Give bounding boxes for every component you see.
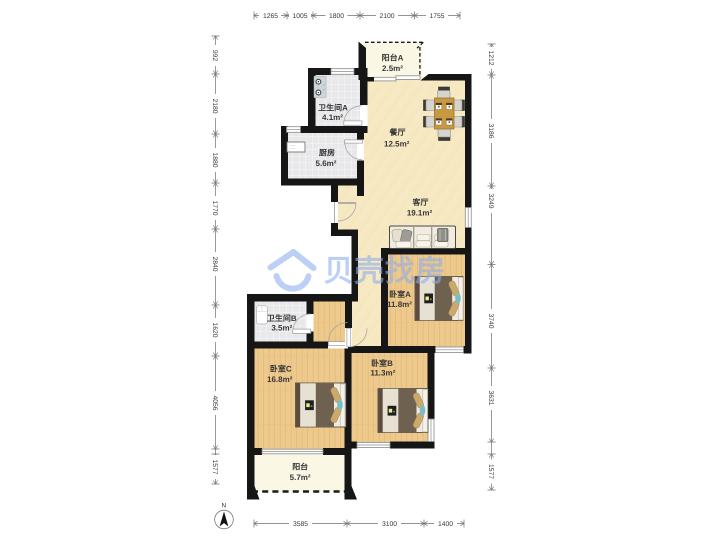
svg-text:1577: 1577	[211, 459, 218, 474]
svg-text:3740: 3740	[487, 313, 494, 328]
svg-text:贝壳找房: 贝壳找房	[324, 255, 446, 288]
svg-text:1755: 1755	[429, 13, 444, 20]
svg-text:厨房: 厨房	[319, 149, 335, 158]
svg-text:N: N	[221, 502, 226, 509]
svg-text:卧室B: 卧室B	[371, 359, 393, 368]
svg-text:1212: 1212	[487, 50, 494, 65]
svg-text:卧室C: 卧室C	[270, 365, 292, 374]
svg-text:3585: 3585	[293, 521, 308, 528]
svg-text:992: 992	[211, 50, 218, 62]
svg-text:5.7m²: 5.7m²	[290, 473, 311, 482]
svg-text:3.5m²: 3.5m²	[271, 324, 292, 333]
svg-text:11.3m²: 11.3m²	[370, 369, 395, 378]
svg-text:5.6m²: 5.6m²	[316, 159, 337, 168]
svg-text:卧室A: 卧室A	[389, 290, 411, 299]
svg-text:3631: 3631	[487, 390, 494, 405]
svg-text:19.1m²: 19.1m²	[407, 209, 433, 218]
svg-text:4056: 4056	[211, 395, 218, 410]
svg-text:16.8m²: 16.8m²	[267, 375, 293, 384]
svg-text:2840: 2840	[211, 256, 218, 271]
svg-text:3100: 3100	[382, 521, 397, 528]
svg-text:阳台A: 阳台A	[382, 54, 404, 63]
svg-text:2180: 2180	[211, 98, 218, 113]
svg-text:卫生间B: 卫生间B	[267, 314, 297, 323]
svg-text:1005: 1005	[292, 13, 307, 20]
svg-text:2100: 2100	[379, 13, 394, 20]
svg-text:3249: 3249	[487, 193, 494, 208]
svg-text:4.1m²: 4.1m²	[322, 113, 343, 122]
svg-text:餐厅: 餐厅	[389, 128, 406, 137]
svg-text:3186: 3186	[487, 123, 494, 138]
svg-text:1400: 1400	[438, 521, 453, 528]
svg-text:1577: 1577	[487, 464, 494, 479]
svg-text:1265: 1265	[263, 13, 278, 20]
svg-text:1770: 1770	[211, 200, 218, 215]
svg-text:2.5m²: 2.5m²	[382, 64, 403, 73]
svg-text:客厅: 客厅	[412, 198, 429, 207]
svg-text:卫生间A: 卫生间A	[318, 104, 348, 113]
svg-text:1800: 1800	[329, 13, 344, 20]
svg-text:阳台: 阳台	[292, 463, 308, 472]
svg-text:1620: 1620	[211, 322, 218, 337]
svg-text:11.8m²: 11.8m²	[387, 300, 412, 309]
svg-text:12.5m²: 12.5m²	[384, 140, 410, 149]
svg-text:1880: 1880	[211, 152, 218, 167]
